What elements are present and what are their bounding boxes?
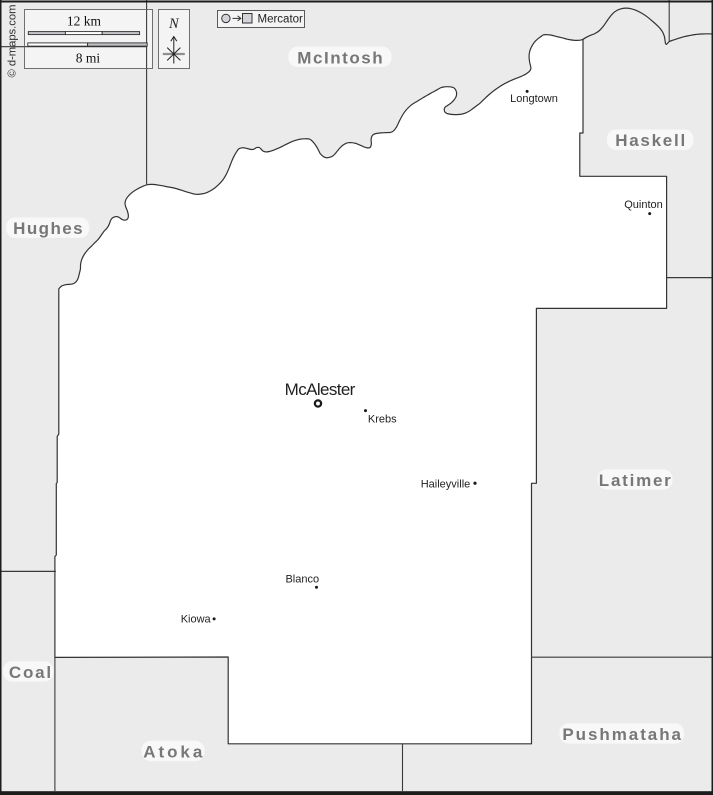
svg-text:McIntosh: McIntosh	[297, 48, 382, 67]
svg-text:Hughes: Hughes	[13, 219, 83, 238]
svg-text:Longtown: Longtown	[510, 93, 558, 105]
svg-text:Haileyville: Haileyville	[421, 479, 471, 491]
svg-text:Kiowa: Kiowa	[181, 613, 212, 625]
svg-text:Mercator: Mercator	[258, 14, 304, 26]
svg-text:Pushmataha: Pushmataha	[562, 725, 681, 744]
svg-text:12 km: 12 km	[67, 14, 102, 29]
svg-text:N: N	[168, 16, 180, 32]
svg-text:Quinton: Quinton	[624, 199, 663, 211]
svg-text:Atoka: Atoka	[143, 743, 203, 762]
svg-text:Krebs: Krebs	[368, 413, 397, 425]
svg-text:Blanco: Blanco	[285, 574, 319, 586]
svg-text:McAlester: McAlester	[285, 380, 356, 399]
svg-text:8 mi: 8 mi	[76, 51, 101, 66]
svg-text:© d-maps.com: © d-maps.com	[7, 5, 19, 78]
